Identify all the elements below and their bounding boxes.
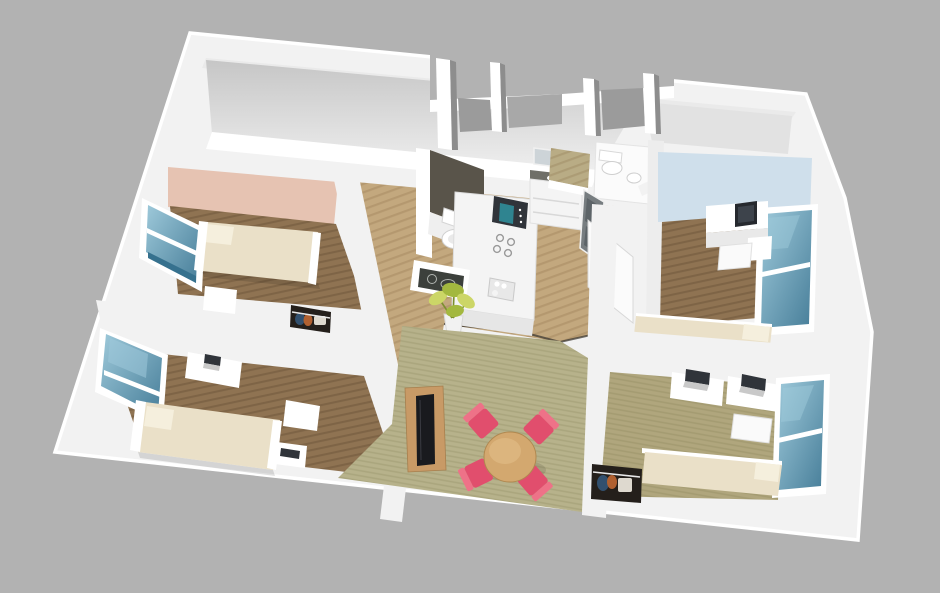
hanging-clothes-orange: [607, 475, 617, 489]
desk-chair: [731, 414, 772, 443]
flat-tv: [416, 394, 435, 466]
desk-chair: [718, 243, 752, 270]
microwave-button: [519, 209, 521, 211]
bedroom-bottom-right: [591, 369, 830, 503]
nightstand-desk: [203, 286, 237, 314]
shaded-wall-face: [458, 98, 492, 132]
sink-faucet: [501, 283, 506, 288]
kitchen-island: [450, 192, 538, 336]
closet-pillow: [618, 478, 632, 492]
wall-slab: [643, 73, 656, 134]
toilet-bowl: [602, 162, 622, 175]
bed-pillow: [204, 224, 234, 245]
screenshot-root: { "meta": { "description": "3D cutaway a…: [0, 0, 940, 593]
bathroom-wall: [416, 148, 432, 258]
bed-pillow: [742, 324, 770, 342]
shaded-wall-face: [601, 88, 645, 130]
monitor-screen: [738, 205, 754, 223]
microwave-button: [520, 221, 522, 223]
bed-pillow: [754, 462, 780, 482]
floorplan-render: [0, 0, 940, 593]
sink-faucet: [494, 281, 499, 286]
hanging-clothes-blue: [295, 313, 305, 325]
microwave-button: [519, 215, 521, 217]
wall-slab: [436, 58, 452, 150]
wall-slab: [583, 78, 596, 136]
shower-room: [548, 148, 590, 196]
table-highlight: [489, 438, 521, 464]
shaded-wall-face: [507, 94, 562, 128]
bed-pillow: [144, 406, 174, 430]
wall-slab: [490, 62, 502, 132]
hand-basin: [627, 173, 641, 183]
bedroom-top-right: [634, 152, 818, 346]
dish: [492, 290, 498, 296]
apartment-3d-svg: [0, 0, 940, 593]
microwave-window: [499, 203, 514, 224]
